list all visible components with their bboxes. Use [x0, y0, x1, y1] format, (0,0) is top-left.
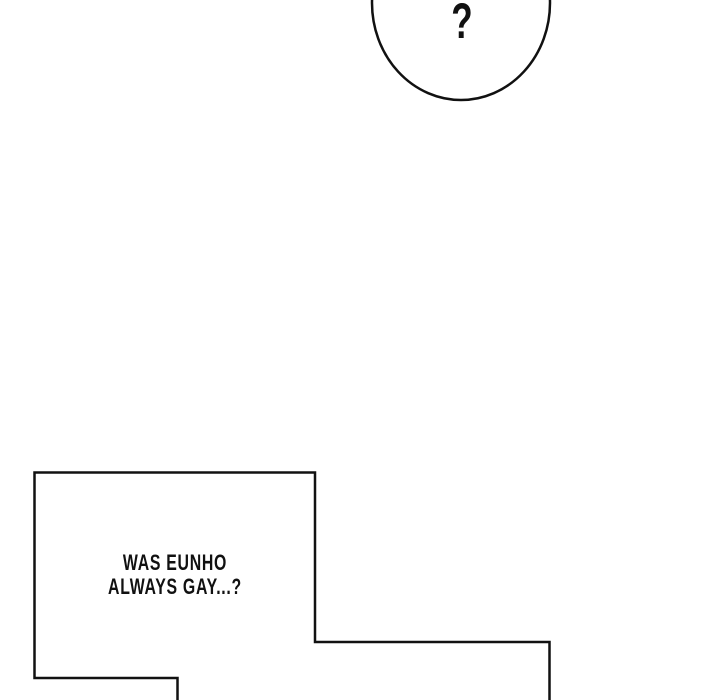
- comic-panel: ? WAS EUNHO ALWAYS GAY...?: [0, 0, 720, 700]
- speech-line-2: ALWAYS GAY...?: [74, 575, 276, 599]
- speech-bubble-text: WAS EUNHO ALWAYS GAY...?: [74, 551, 276, 599]
- speech-line-1: WAS EUNHO: [74, 551, 276, 575]
- question-bubble-text: ?: [427, 0, 497, 47]
